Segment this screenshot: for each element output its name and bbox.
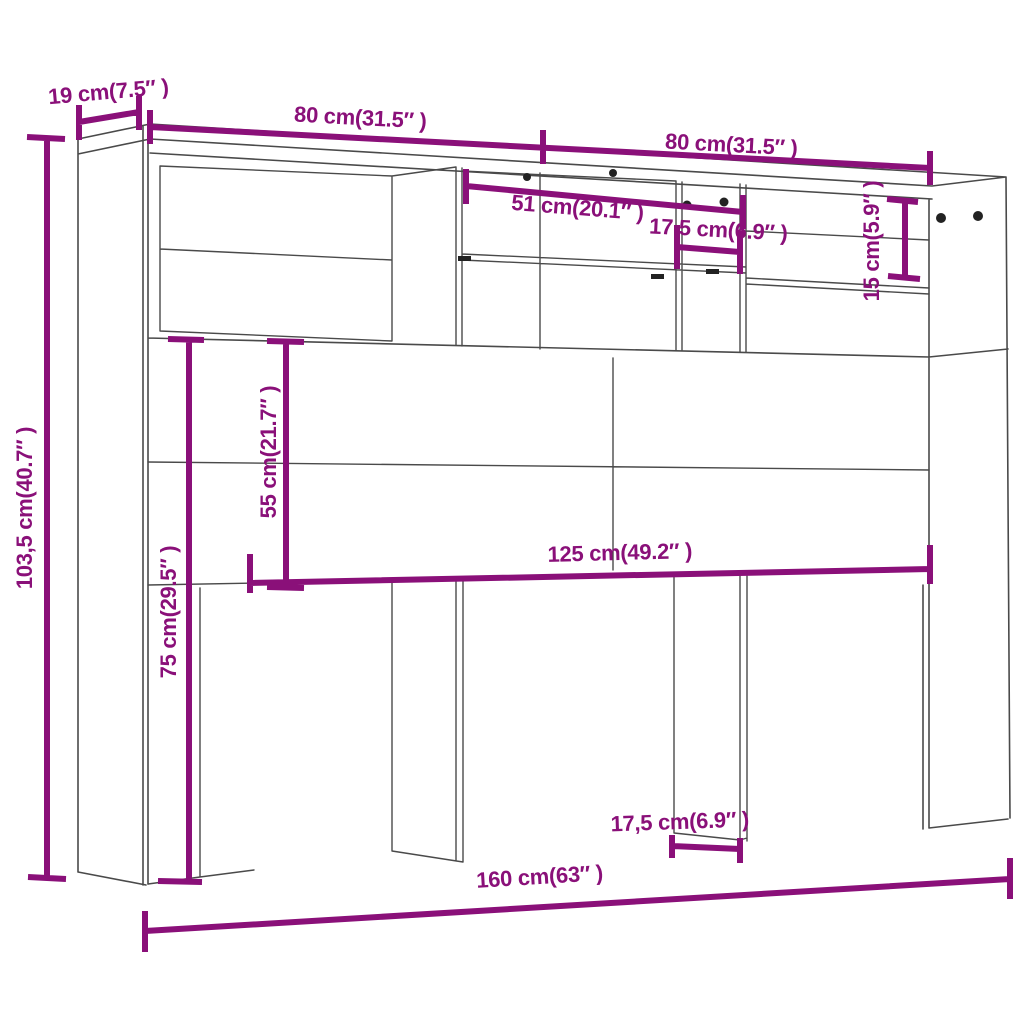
screw-dot: [523, 173, 531, 181]
dim-label-top-slot-height: 15 cm(5.9″ ): [859, 181, 884, 302]
shelf-pin: [706, 269, 719, 274]
screw-dot: [936, 213, 946, 223]
dim-label-panel-height: 55 cm(21.7″ ): [256, 386, 281, 519]
dimension-diagram: 19 cm(7.5″ ) 80 cm(31.5″ ) 80 cm(31.5″ )…: [0, 0, 1024, 1024]
screw-dot: [609, 169, 617, 177]
dim-label-total-height: 103,5 cm(40.7″ ): [12, 427, 37, 589]
dim-label-inner-width: 125 cm(49.2″ ): [547, 538, 692, 567]
dim-label-leg-width: 17,5 cm(6.9″ ): [610, 807, 749, 837]
shelf-pin: [458, 256, 471, 261]
shelf-pin: [651, 274, 664, 279]
dim-label-leg-height: 75 cm(29.5″ ): [156, 546, 181, 679]
headboard-cabinet-diagram: 19 cm(7.5″ ) 80 cm(31.5″ ) 80 cm(31.5″ )…: [0, 0, 1024, 1024]
screw-dot: [720, 198, 729, 207]
screw-dot: [973, 211, 983, 221]
